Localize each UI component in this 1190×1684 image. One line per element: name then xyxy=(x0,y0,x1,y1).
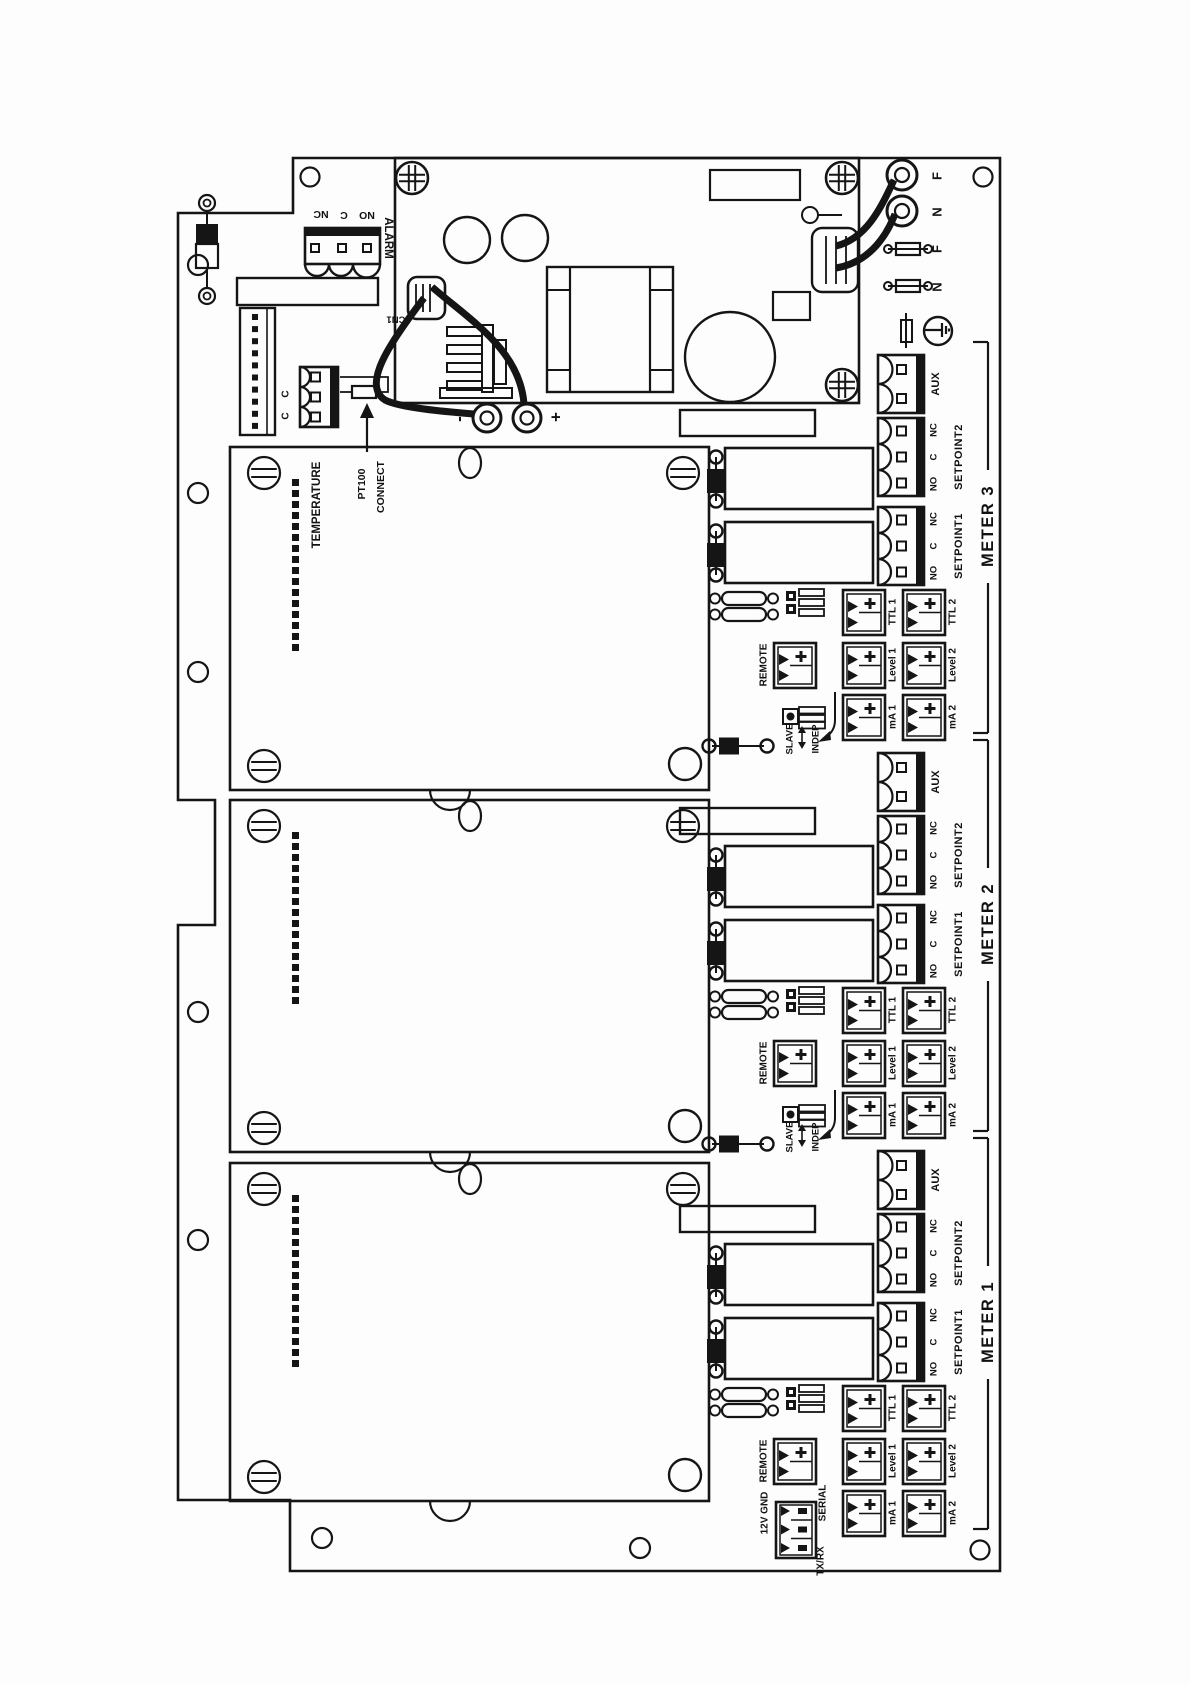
ma1-label: mA 1 xyxy=(888,1103,899,1128)
setpoint1-terminal-block xyxy=(878,1303,924,1381)
setpoint1-label: SETPOINT1 xyxy=(953,513,965,579)
level1-label: Level 1 xyxy=(888,1444,899,1478)
diode-icon xyxy=(707,1321,725,1378)
relay xyxy=(725,1244,873,1305)
level2-label: Level 2 xyxy=(948,1046,959,1080)
ring-terminal-icon xyxy=(887,196,917,226)
capacitor-icon xyxy=(710,1006,778,1019)
temp-c-label: C xyxy=(281,390,292,397)
ring-terminal-icon xyxy=(473,404,501,432)
alarm-connector-area: NCCNOALARM xyxy=(305,208,394,278)
jumper-block xyxy=(786,987,824,1014)
ttl2-label: TTL 2 xyxy=(948,1394,959,1421)
mounting-hole xyxy=(188,1002,208,1022)
screw-icon xyxy=(248,1112,280,1144)
remote-connector xyxy=(774,1439,816,1484)
slave-label: SLAVE xyxy=(785,724,796,755)
mains-terminals: FNFN xyxy=(884,160,952,348)
level1-label: Level 1 xyxy=(888,648,899,682)
mounting-hole xyxy=(312,1528,332,1548)
nc-label: NC xyxy=(929,1308,940,1322)
ttl2-label: TTL 2 xyxy=(948,598,959,625)
remote-label: REMOTE xyxy=(759,1041,770,1084)
screw-icon xyxy=(248,1461,280,1493)
pt100-arrow-icon xyxy=(360,403,374,452)
capacitor-icon xyxy=(710,592,778,605)
ground-fuse-icon xyxy=(901,313,912,348)
ttl1-connector xyxy=(843,1386,885,1431)
ttl2-connector xyxy=(903,988,945,1033)
ma2-connector xyxy=(903,1093,945,1138)
screw-icon xyxy=(248,457,280,489)
c-label: C xyxy=(929,1338,940,1345)
board-pin-header xyxy=(292,1195,299,1367)
ma1-connector xyxy=(843,1093,885,1138)
aux-label: AUX xyxy=(930,1168,942,1192)
fuse-icon xyxy=(884,280,932,292)
no-label: NO xyxy=(929,477,940,491)
power-supply-board: CN1-+ xyxy=(376,158,895,432)
dc-minus-label: - xyxy=(450,416,469,422)
no-label: NO xyxy=(929,1362,940,1376)
ttl1-connector xyxy=(843,590,885,635)
capacitor-icon xyxy=(710,608,778,621)
level2-label: Level 2 xyxy=(948,648,959,682)
serial-connector xyxy=(776,1502,816,1558)
meter-board-2 xyxy=(230,800,709,1172)
indep-label: INDEP xyxy=(811,724,822,754)
setpoint2-label: SETPOINT2 xyxy=(953,822,965,888)
meter-name: METER 2 xyxy=(979,883,997,965)
jumper-block xyxy=(786,589,824,616)
aux-terminal-block xyxy=(878,1151,924,1209)
mounting-hole xyxy=(188,483,208,503)
diode-icon xyxy=(707,451,725,508)
ttl2-connector xyxy=(903,1386,945,1431)
meter-chassis-wiring-diagram: CN1-+FNFNNCCNOALARMCCPT100CONNECTTEMPERA… xyxy=(0,0,1190,1684)
capacitor-icon xyxy=(710,1388,778,1401)
neutral-label: N xyxy=(930,207,945,216)
diode-icon xyxy=(707,525,725,582)
ttl2-connector xyxy=(903,590,945,635)
ma2-label: mA 2 xyxy=(948,1103,959,1128)
meter-2-io-group: AUXNCCNOSETPOINT2NCCNOSETPOINT1TTL 1TTL … xyxy=(680,740,997,1153)
aux-label: AUX xyxy=(930,770,942,794)
aux-terminal-block xyxy=(878,753,924,811)
ma1-label: mA 1 xyxy=(888,705,899,730)
level2-label: Level 2 xyxy=(948,1444,959,1478)
setpoint1-label: SETPOINT1 xyxy=(953,1309,965,1375)
mounting-hole xyxy=(974,168,993,187)
indep-label: INDEP xyxy=(811,1122,822,1152)
ma1-connector xyxy=(843,695,885,740)
screw-icon xyxy=(248,1173,280,1205)
level2-connector xyxy=(903,1439,945,1484)
ring-terminal-icon xyxy=(513,404,541,432)
setpoint2-label: SETPOINT2 xyxy=(953,1220,965,1286)
c-label: C xyxy=(929,940,940,947)
ma2-connector xyxy=(903,1491,945,1536)
connect-label: CONNECT xyxy=(375,460,387,513)
nc-label: NC xyxy=(929,423,940,437)
slave-label: SLAVE xyxy=(785,1122,796,1153)
mounting-hole xyxy=(188,1230,208,1250)
ma1-label: mA 1 xyxy=(888,1501,899,1526)
setpoint2-terminal-block xyxy=(878,1214,924,1292)
board-pin-header xyxy=(292,832,299,1004)
level1-connector xyxy=(843,1041,885,1086)
remote-label: REMOTE xyxy=(759,643,770,686)
relay xyxy=(725,846,873,907)
meter-name: METER 3 xyxy=(979,485,997,567)
dc-plus-label: + xyxy=(547,412,566,422)
level2-connector xyxy=(903,643,945,688)
diode-icon xyxy=(703,738,774,755)
screw-icon xyxy=(248,750,280,782)
setpoint1-terminal-block xyxy=(878,507,924,585)
ttl2-label: TTL 2 xyxy=(948,996,959,1023)
nc-label: NC xyxy=(929,512,940,526)
setpoint2-terminal-block xyxy=(878,418,924,496)
relay xyxy=(725,920,873,981)
meter-board-3 xyxy=(230,447,709,810)
temperature-label: TEMPERATURE xyxy=(311,461,323,548)
capacitor-icon xyxy=(710,1404,778,1417)
level2-connector xyxy=(903,1041,945,1086)
alarm-no-label: NO xyxy=(359,209,375,221)
nc-label: NC xyxy=(929,1219,940,1233)
remote-label: REMOTE xyxy=(759,1439,770,1482)
capacitor-icon xyxy=(710,990,778,1003)
meter-1-io-group: AUXNCCNOSETPOINT2NCCNOSETPOINT1TTL 1TTL … xyxy=(680,1138,997,1576)
screw-icon xyxy=(667,457,699,489)
board-pin-header xyxy=(292,479,299,651)
setpoint2-label: SETPOINT2 xyxy=(953,424,965,490)
temperature-pin-header xyxy=(240,308,275,435)
serial-power-label: 12V GND xyxy=(760,1492,771,1535)
alarm-label: ALARM xyxy=(382,217,394,259)
serial-label: SERIAL xyxy=(818,1485,829,1522)
screw-icon xyxy=(248,810,280,842)
ttl1-label: TTL 1 xyxy=(888,1394,899,1421)
wiring-diagram-page: CN1-+FNFNNCCNOALARMCCPT100CONNECTTEMPERA… xyxy=(0,0,1190,1684)
ttl1-label: TTL 1 xyxy=(888,598,899,625)
c-label: C xyxy=(929,1249,940,1256)
pt100-label: PT100 xyxy=(356,468,368,499)
transformer-icon xyxy=(547,267,673,392)
ma2-label: mA 2 xyxy=(948,1501,959,1526)
no-label: NO xyxy=(929,1273,940,1287)
c-label: C xyxy=(929,453,940,460)
temperature-connector-area: CCPT100CONNECTTEMPERATURE xyxy=(237,278,388,548)
temp-c-label: C xyxy=(281,412,292,419)
remote-connector xyxy=(774,1041,816,1086)
line-label: F xyxy=(930,172,945,180)
heatsink-icon xyxy=(440,325,512,398)
no-label: NO xyxy=(929,566,940,580)
ttl1-connector xyxy=(843,988,885,1033)
diode-icon xyxy=(707,1247,725,1304)
relay xyxy=(725,448,873,509)
level1-label: Level 1 xyxy=(888,1046,899,1080)
alarm-nc-label: NC xyxy=(313,208,329,220)
ma2-label: mA 2 xyxy=(948,705,959,730)
jumper-block xyxy=(786,1385,824,1412)
pt100-terminal-block xyxy=(300,367,338,427)
mounting-hole xyxy=(301,168,320,187)
mounting-hole xyxy=(971,1541,990,1560)
diode-icon xyxy=(703,1136,774,1153)
screw-icon xyxy=(667,1173,699,1205)
setpoint2-terminal-block xyxy=(878,816,924,894)
aux-label: AUX xyxy=(930,372,942,396)
nc-label: NC xyxy=(929,821,940,835)
no-label: NO xyxy=(929,875,940,889)
ttl1-label: TTL 1 xyxy=(888,996,899,1023)
phillips-screw-icon xyxy=(396,162,428,194)
fuse-icon xyxy=(884,243,932,255)
relay xyxy=(725,522,873,583)
txrx-label: TX/RX xyxy=(816,1546,827,1576)
phillips-screw-icon xyxy=(826,369,858,401)
c-label: C xyxy=(929,542,940,549)
fuse-holder-icon xyxy=(196,195,218,304)
diode-icon xyxy=(707,849,725,906)
nc-label: NC xyxy=(929,910,940,924)
phillips-screw-icon xyxy=(826,162,858,194)
relay xyxy=(725,1318,873,1379)
ring-terminal-icon xyxy=(887,160,917,190)
pilot-lamp-icon xyxy=(802,207,842,223)
no-label: NO xyxy=(929,964,940,978)
line-fuse-label: F xyxy=(930,245,945,253)
level1-connector xyxy=(843,643,885,688)
meter-name: METER 1 xyxy=(979,1281,997,1363)
c-label: C xyxy=(929,851,940,858)
alarm-terminal-block xyxy=(305,228,380,278)
mounting-hole xyxy=(188,255,208,275)
aux-terminal-block xyxy=(878,355,924,413)
remote-connector xyxy=(774,643,816,688)
level1-connector xyxy=(843,1439,885,1484)
setpoint1-terminal-block xyxy=(878,905,924,983)
diode-icon xyxy=(707,923,725,980)
earth-icon xyxy=(924,317,952,345)
setpoint1-label: SETPOINT1 xyxy=(953,911,965,977)
meter-board-1 xyxy=(230,1163,709,1521)
ma1-connector xyxy=(843,1491,885,1536)
screw-icon xyxy=(667,810,699,842)
neutral-fuse-label: N xyxy=(930,282,945,291)
mounting-hole xyxy=(188,662,208,682)
mounting-hole xyxy=(630,1538,650,1558)
ma2-connector xyxy=(903,695,945,740)
alarm-c-label: C xyxy=(340,209,348,221)
